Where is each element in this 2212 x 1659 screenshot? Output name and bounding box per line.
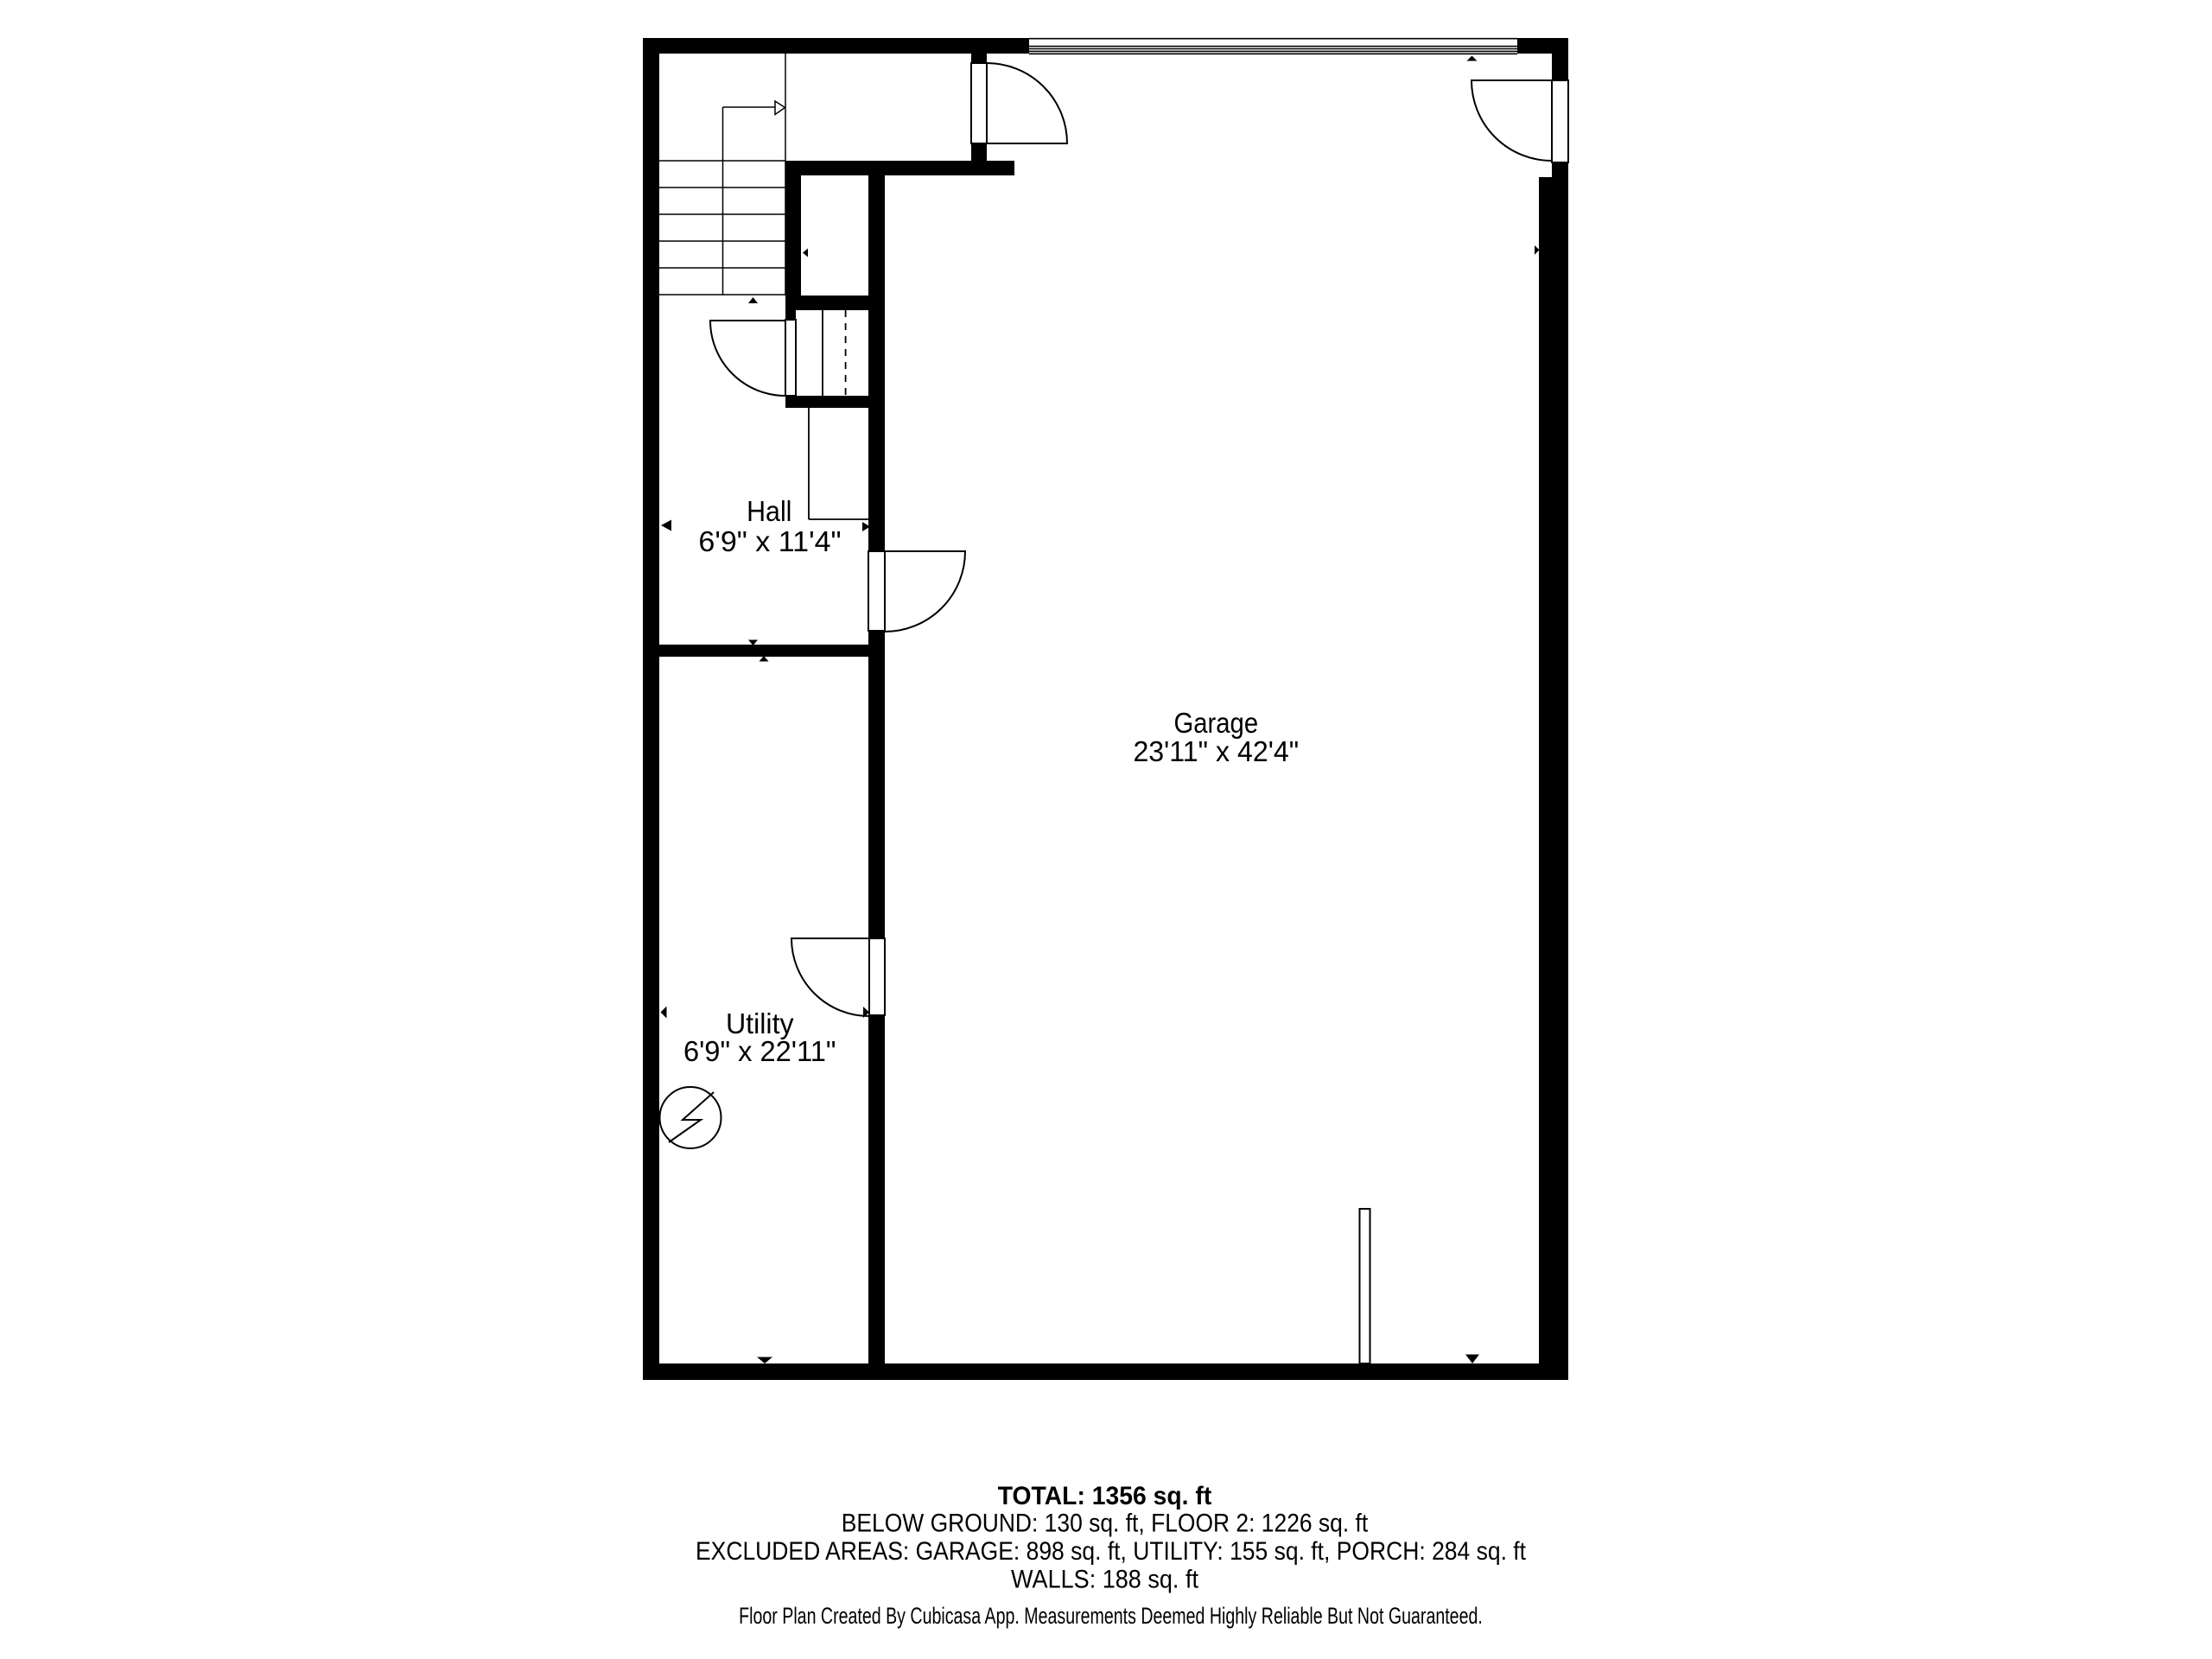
- svg-text:6'9" x 22'11": 6'9" x 22'11": [683, 1035, 836, 1067]
- svg-text:EXCLUDED AREAS: GARAGE: 898 sq: EXCLUDED AREAS: GARAGE: 898 sq. ft, UTIL…: [696, 1537, 1527, 1566]
- svg-text:Floor Plan Created By Cubicasa: Floor Plan Created By Cubicasa App. Meas…: [739, 1603, 1483, 1629]
- svg-text:Hall: Hall: [747, 495, 791, 527]
- svg-text:TOTAL: 1356 sq. ft: TOTAL: 1356 sq. ft: [998, 1482, 1212, 1510]
- svg-text:Garage: Garage: [1174, 707, 1259, 739]
- svg-text:23'11" x 42'4": 23'11" x 42'4": [1133, 735, 1299, 767]
- svg-text:WALLS: 188 sq. ft: WALLS: 188 sq. ft: [1011, 1566, 1199, 1594]
- svg-text:6'9" x 11'4": 6'9" x 11'4": [698, 525, 841, 557]
- svg-text:BELOW GROUND: 130 sq. ft, FLOO: BELOW GROUND: 130 sq. ft, FLOOR 2: 1226 …: [842, 1510, 1369, 1538]
